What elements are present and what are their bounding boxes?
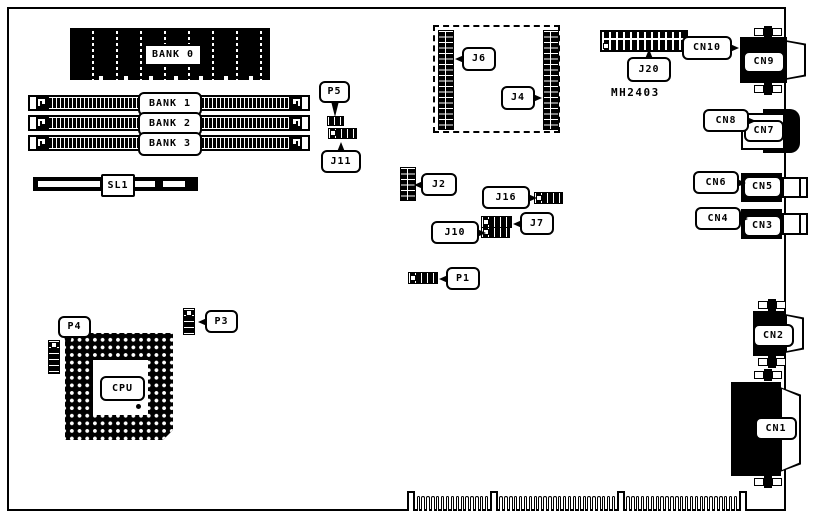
j6-label-text: J6 <box>472 54 486 64</box>
jumper-p5-pins <box>327 116 344 126</box>
edge-finger <box>553 496 556 511</box>
edge-finger <box>660 496 663 511</box>
pointer-icon <box>439 275 448 283</box>
callout-p1: P1 <box>446 267 480 290</box>
edge-finger <box>470 496 473 511</box>
edge-finger <box>656 496 659 511</box>
edge-finger <box>670 496 673 511</box>
pin1-marker <box>603 43 609 49</box>
edge-finger <box>514 496 517 511</box>
simm-clip-icon <box>36 137 49 149</box>
motherboard-diagram: BANK 0 BANK 1 BANK 2 BANK 3 SL1 J6 J4 P5 <box>0 0 813 517</box>
pin1-marker <box>186 310 192 316</box>
j10-label-text: J10 <box>444 228 465 238</box>
callout-cn6: CN6 <box>693 171 739 194</box>
screw-post-icon <box>764 26 772 38</box>
screw-post-icon <box>764 476 772 488</box>
pointer-icon <box>513 220 522 228</box>
connector-cn3-jack <box>782 213 808 235</box>
edge-finger <box>685 496 688 511</box>
edge-connector <box>407 491 747 511</box>
pointer-icon <box>730 44 739 52</box>
bank2-label-text: BANK 2 <box>149 119 191 129</box>
j7-label-text: J7 <box>530 219 544 229</box>
header-j11-pins <box>328 128 357 139</box>
callout-j2: J2 <box>421 173 457 196</box>
bank3-label: BANK 3 <box>138 132 202 156</box>
header-p3-pins <box>183 308 195 335</box>
pointer-icon <box>528 194 537 202</box>
cn10-label-text: CN10 <box>693 43 721 53</box>
pointer-icon <box>477 229 486 237</box>
pointer-icon <box>414 181 423 189</box>
edge-finger <box>499 496 502 511</box>
j16-label-text: J16 <box>495 193 516 203</box>
header-j4-pins <box>543 30 559 130</box>
edge-finger <box>665 496 668 511</box>
edge-finger <box>421 496 424 511</box>
callout-j7: J7 <box>520 212 554 235</box>
edge-finger <box>734 496 737 511</box>
edge-finger <box>519 496 522 511</box>
edge-tab <box>739 491 747 511</box>
edge-finger <box>504 496 507 511</box>
header-p4-pins <box>48 340 60 374</box>
bank1-label-text: BANK 1 <box>149 99 191 109</box>
simm-clip-icon <box>36 117 49 129</box>
header-j16-pins <box>534 192 563 204</box>
edge-finger <box>461 496 464 511</box>
callout-j11: J11 <box>321 150 361 173</box>
edge-finger <box>558 496 561 511</box>
header-j6-pins <box>438 30 454 130</box>
edge-finger <box>465 496 468 511</box>
edge-finger <box>417 496 420 511</box>
pin1-marker <box>330 130 336 136</box>
edge-finger <box>426 496 429 511</box>
edge-finger <box>646 496 649 511</box>
callout-cn8: CN8 <box>703 109 749 132</box>
edge-finger <box>475 496 478 511</box>
edge-tab <box>617 491 625 511</box>
edge-finger <box>641 496 644 511</box>
edge-finger <box>680 496 683 511</box>
connector-cn9-dsub <box>785 40 806 80</box>
edge-finger <box>602 496 605 511</box>
simm-clip-icon <box>36 97 49 109</box>
edge-finger <box>563 496 566 511</box>
cpu-label: CPU <box>100 376 145 401</box>
edge-finger <box>524 496 527 511</box>
edge-finger <box>719 496 722 511</box>
edge-finger <box>548 496 551 511</box>
edge-finger <box>607 496 610 511</box>
edge-finger <box>587 496 590 511</box>
pointer-icon <box>64 336 72 352</box>
edge-finger <box>714 496 717 511</box>
cn3-label-text: CN3 <box>752 221 773 231</box>
screw-post-icon <box>764 369 772 381</box>
simm-endcap <box>302 117 308 129</box>
sl1-segment <box>133 181 155 187</box>
edge-finger <box>631 496 634 511</box>
chip-text: MH2403 <box>611 86 660 99</box>
cn6-label-text: CN6 <box>705 178 726 188</box>
pointer-icon <box>747 117 756 125</box>
callout-cn4: CN4 <box>695 207 741 230</box>
simm-endcap <box>302 137 308 149</box>
pin1-marker <box>410 275 416 281</box>
callout-j6: J6 <box>462 47 496 71</box>
pin1-marker <box>51 342 57 348</box>
simm-endcap <box>302 97 308 109</box>
cn9-label: CN9 <box>743 51 785 73</box>
edge-finger <box>568 496 571 511</box>
j4-label-text: J4 <box>511 93 525 103</box>
j11-label-text: J11 <box>330 157 351 167</box>
cpu-pin1-dot <box>136 404 141 409</box>
sl1-segment <box>163 181 185 187</box>
cn7-label-text: CN7 <box>753 126 774 136</box>
sl1-label-text: SL1 <box>107 181 128 191</box>
cn5-label: CN5 <box>743 176 782 198</box>
p1-label-text: P1 <box>456 274 470 284</box>
pin1-marker <box>483 219 489 225</box>
cn4-label-text: CN4 <box>707 214 728 224</box>
p5-label-text: P5 <box>327 87 341 97</box>
callout-j4: J4 <box>501 86 535 110</box>
screw-post-icon <box>764 83 772 95</box>
simm-clip-icon <box>289 137 302 149</box>
cn5-label-text: CN5 <box>752 182 773 192</box>
edge-finger <box>709 496 712 511</box>
pointer-icon <box>737 179 746 187</box>
callout-cn10: CN10 <box>682 36 732 60</box>
callout-j16: J16 <box>482 186 530 209</box>
cn2-label: CN2 <box>753 324 794 347</box>
simm-clip-icon <box>289 97 302 109</box>
callout-p3: P3 <box>205 310 238 333</box>
edge-tab <box>407 491 415 511</box>
callout-j20: J20 <box>627 57 671 82</box>
edge-finger <box>592 496 595 511</box>
header-p1-pins <box>408 272 438 284</box>
edge-finger <box>612 496 615 511</box>
connector-cn5-jack <box>782 177 808 198</box>
edge-finger <box>436 496 439 511</box>
cn9-label-text: CN9 <box>753 57 774 67</box>
edge-finger <box>534 496 537 511</box>
pointer-icon <box>331 101 339 117</box>
edge-finger <box>431 496 434 511</box>
edge-finger <box>690 496 693 511</box>
p4-label-text: P4 <box>67 322 81 332</box>
edge-finger <box>509 496 512 511</box>
edge-finger <box>446 496 449 511</box>
edge-finger <box>538 496 541 511</box>
edge-finger <box>583 496 586 511</box>
cpu-label-text: CPU <box>112 384 133 394</box>
header-j20-pins <box>600 30 688 52</box>
callout-j10: J10 <box>431 221 479 244</box>
edge-finger <box>729 496 732 511</box>
cn1-label-text: CN1 <box>765 424 786 434</box>
j2-label-text: J2 <box>432 180 446 190</box>
bank0-label: BANK 0 <box>144 44 202 66</box>
chip-designator-text: MH2403 <box>611 86 660 99</box>
edge-finger <box>456 496 459 511</box>
edge-finger <box>543 496 546 511</box>
pointer-icon <box>533 94 542 102</box>
edge-finger <box>529 496 532 511</box>
edge-finger <box>675 496 678 511</box>
pointer-icon <box>645 49 653 59</box>
p3-label-text: P3 <box>214 317 228 327</box>
sl1-segment <box>38 181 100 187</box>
pointer-icon <box>337 142 345 152</box>
pointer-icon <box>198 318 207 326</box>
edge-finger <box>626 496 629 511</box>
edge-finger <box>597 496 600 511</box>
cn8-label-text: CN8 <box>715 116 736 126</box>
edge-finger <box>651 496 654 511</box>
edge-finger <box>578 496 581 511</box>
screw-post-icon <box>768 356 776 368</box>
edge-tab <box>490 491 498 511</box>
edge-finger <box>480 496 483 511</box>
cn1-label: CN1 <box>755 417 797 440</box>
edge-finger <box>573 496 576 511</box>
edge-finger <box>704 496 707 511</box>
pointer-icon <box>455 55 464 63</box>
edge-finger <box>636 496 639 511</box>
simm-clip-icon <box>289 117 302 129</box>
sl1-label: SL1 <box>101 174 135 197</box>
callout-p4: P4 <box>58 316 91 338</box>
edge-finger <box>724 496 727 511</box>
cn2-label-text: CN2 <box>763 331 784 341</box>
bank3-label-text: BANK 3 <box>149 139 191 149</box>
dsub-face <box>787 42 804 78</box>
edge-finger <box>441 496 444 511</box>
edge-finger <box>451 496 454 511</box>
edge-finger <box>700 496 703 511</box>
cn3-label: CN3 <box>743 215 782 237</box>
bank0-label-text: BANK 0 <box>152 50 194 60</box>
edge-finger <box>485 496 488 511</box>
j20-label-text: J20 <box>638 65 659 75</box>
screw-post-icon <box>768 299 776 311</box>
bank0-pin-notches <box>78 76 262 80</box>
edge-finger <box>695 496 698 511</box>
pointer-icon <box>739 215 748 223</box>
callout-p5: P5 <box>319 81 350 103</box>
